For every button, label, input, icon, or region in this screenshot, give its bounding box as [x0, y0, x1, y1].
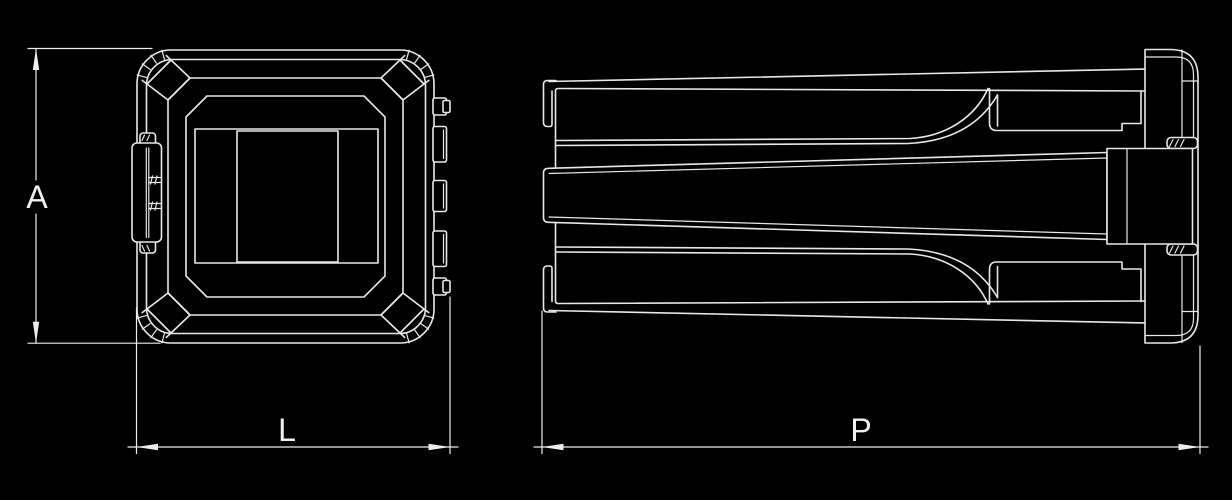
- left-clip: [132, 133, 162, 253]
- front-outer-contour: [137, 50, 434, 343]
- cavity-slot: [195, 129, 378, 263]
- corner-diamonds: [142, 56, 429, 338]
- right-clip-tabs: [433, 98, 450, 295]
- dimension-a-label: A: [26, 179, 48, 215]
- side-middle-bar: [544, 153, 1108, 240]
- dimension-l-arrow-right: [429, 444, 451, 450]
- dimension-a-arrow-bottom: [33, 322, 39, 344]
- dimension-l: L: [128, 297, 458, 454]
- dimension-a-arrow-top: [33, 49, 39, 71]
- dimension-p-arrow-right: [1179, 444, 1201, 450]
- corner-hatch-ticks: [137, 50, 434, 343]
- front-view: [132, 50, 450, 343]
- side-bottom-fin: [544, 247, 1146, 323]
- drawing-svg: A L P: [0, 0, 1232, 500]
- dimension-p-label: P: [850, 412, 871, 448]
- technical-drawing-canvas: A L P: [0, 0, 1232, 500]
- front-octagon-inner: [186, 96, 385, 297]
- front-inner-contour: [147, 60, 426, 334]
- dimension-l-label: L: [278, 412, 296, 448]
- front-octagon-outer: [168, 78, 403, 315]
- dimension-l-arrow-left: [137, 444, 159, 450]
- side-head-block: [1107, 149, 1193, 245]
- dimension-p-arrow-left: [542, 444, 564, 450]
- cavity-square: [237, 131, 338, 262]
- dimension-p: P: [534, 311, 1208, 454]
- side-view: [544, 50, 1199, 344]
